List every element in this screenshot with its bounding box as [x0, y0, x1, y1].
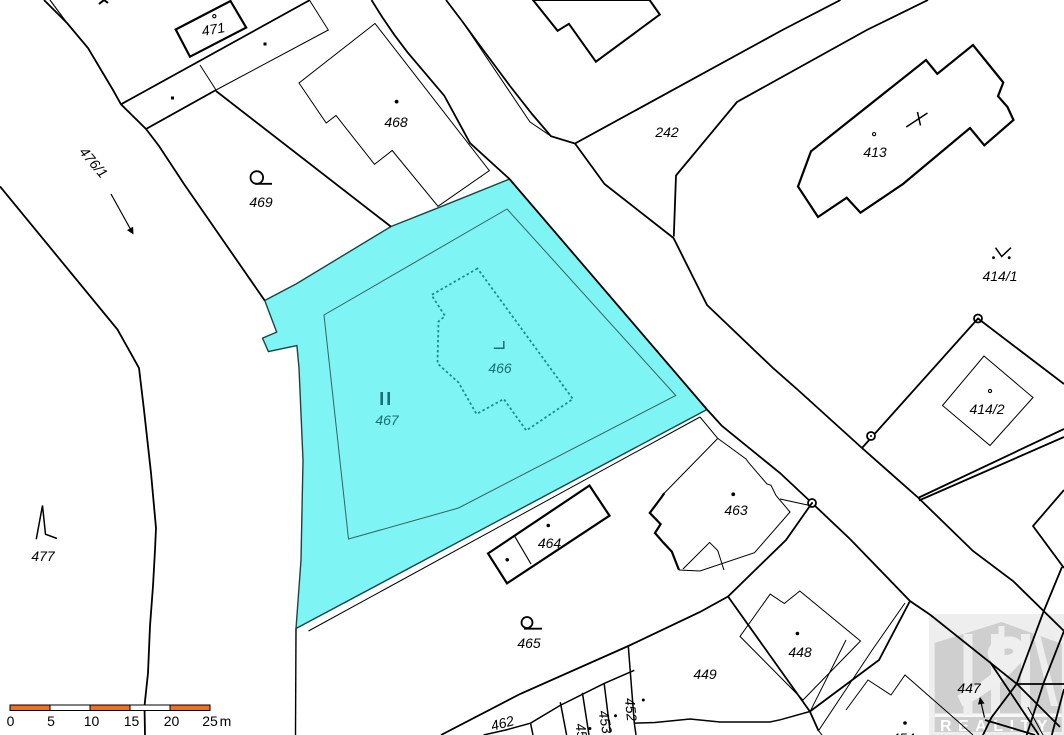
svg-text:464: 464	[538, 535, 562, 551]
svg-text:5: 5	[47, 713, 55, 729]
svg-text:414/2: 414/2	[969, 401, 1004, 417]
svg-text:0: 0	[7, 713, 15, 729]
svg-text:452: 452	[622, 697, 640, 722]
svg-text:477: 477	[31, 548, 56, 564]
svg-text:467: 467	[375, 412, 400, 428]
svg-text:465: 465	[517, 635, 541, 651]
svg-text:447: 447	[957, 680, 982, 696]
svg-text:413: 413	[863, 144, 887, 160]
svg-text:242: 242	[654, 124, 679, 140]
svg-text:448: 448	[788, 644, 812, 660]
svg-text:468: 468	[384, 114, 408, 130]
svg-text:45: 45	[572, 722, 590, 735]
svg-text:m: m	[220, 713, 232, 729]
svg-text:449: 449	[693, 666, 717, 682]
svg-text:414/1: 414/1	[982, 268, 1017, 284]
svg-text:463: 463	[724, 502, 748, 518]
svg-text:15: 15	[124, 713, 140, 729]
svg-text:10: 10	[84, 713, 100, 729]
svg-text:25: 25	[202, 713, 218, 729]
svg-text:454: 454	[891, 730, 915, 735]
svg-text:466: 466	[488, 360, 512, 376]
svg-text:469: 469	[249, 194, 273, 210]
svg-text:20: 20	[164, 713, 180, 729]
